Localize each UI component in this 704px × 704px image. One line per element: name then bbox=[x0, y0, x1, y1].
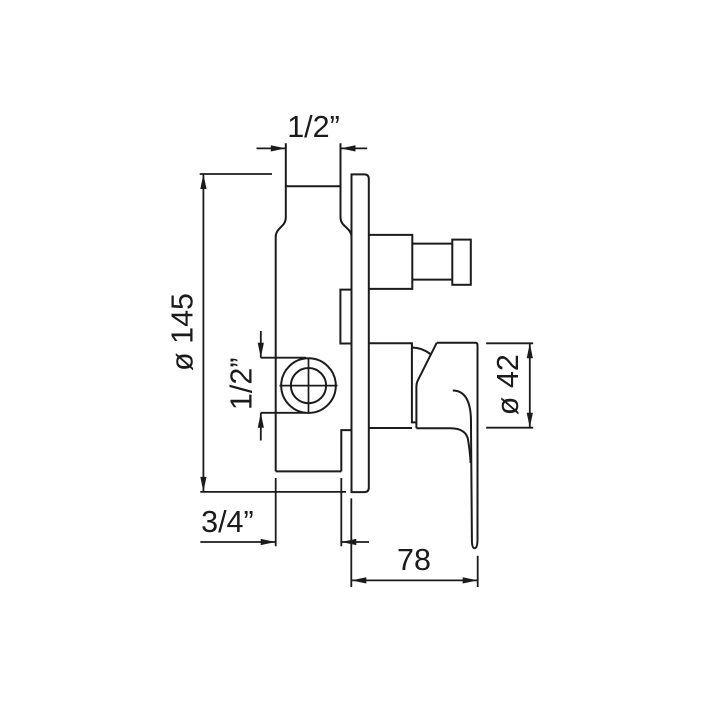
svg-text:78: 78 bbox=[397, 543, 431, 577]
svg-text:ø 42: ø 42 bbox=[491, 354, 525, 415]
svg-text:1/2”: 1/2” bbox=[224, 358, 258, 411]
svg-text:ø 145: ø 145 bbox=[165, 293, 199, 371]
svg-text:1/2”: 1/2” bbox=[287, 110, 340, 144]
svg-text:3/4”: 3/4” bbox=[201, 505, 254, 539]
